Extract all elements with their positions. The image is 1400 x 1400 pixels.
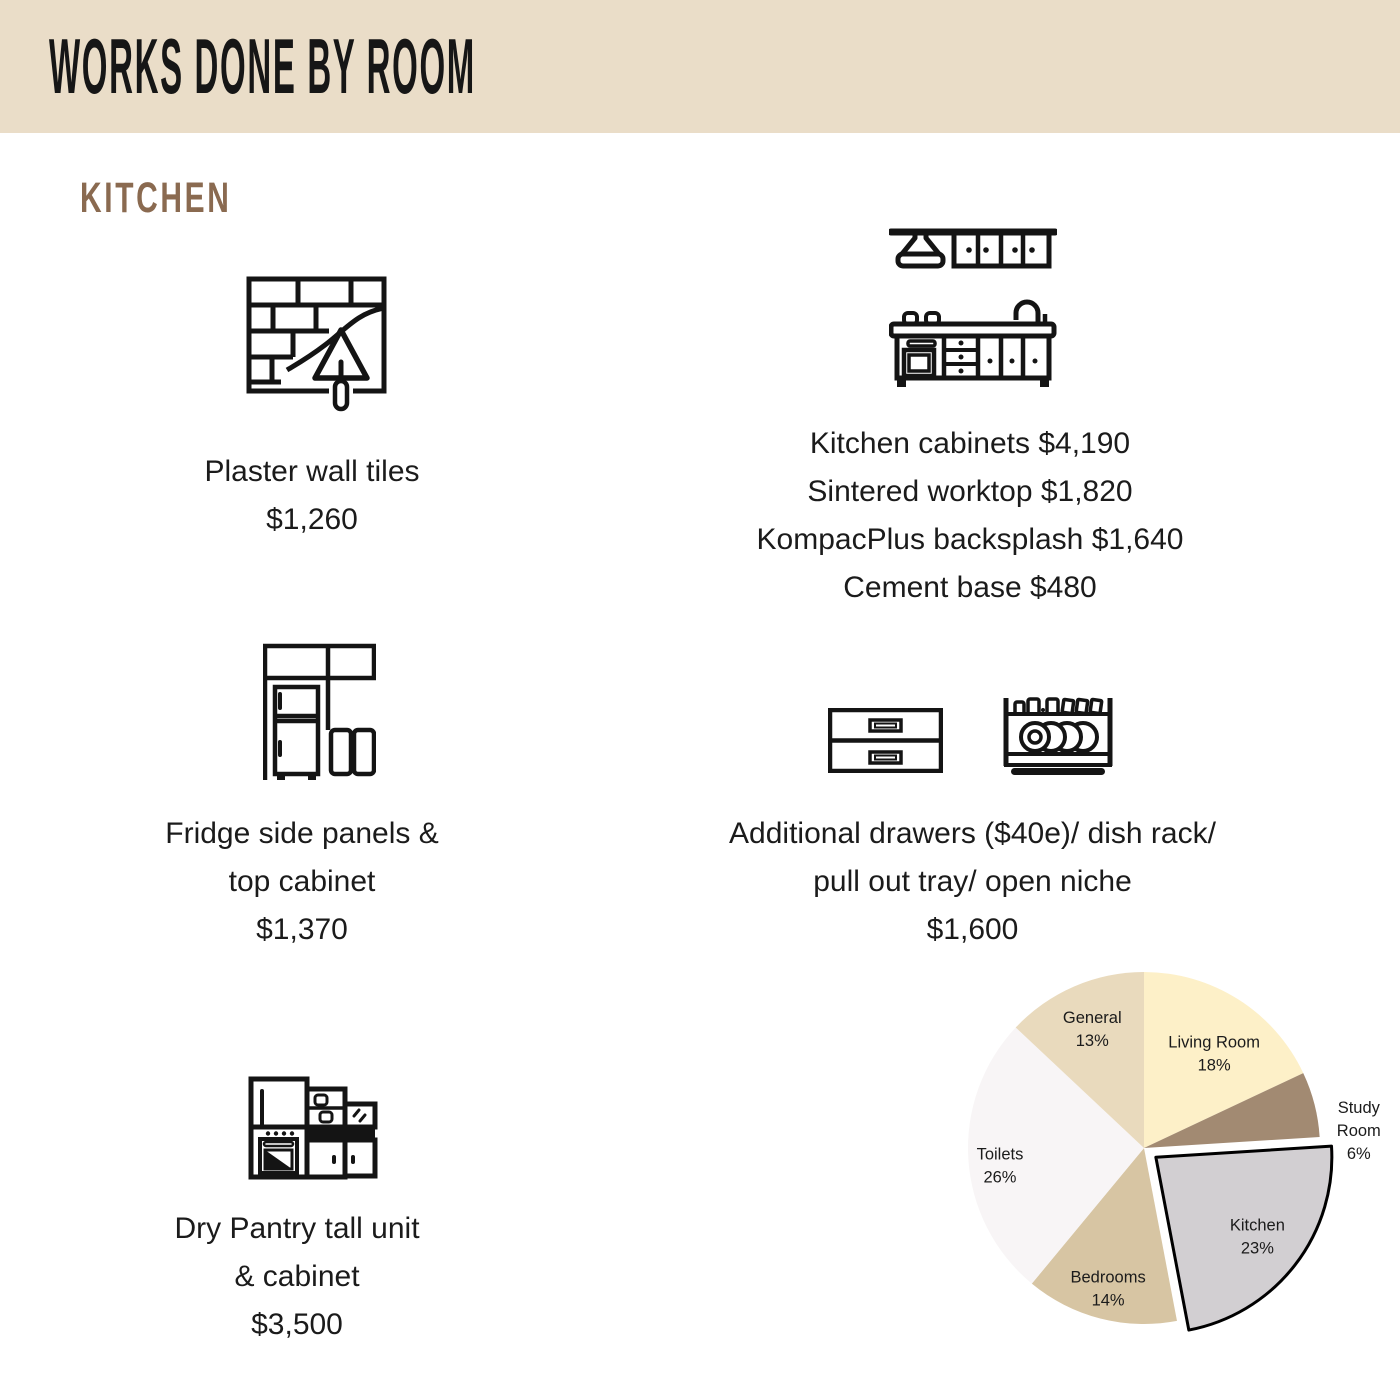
header-bar: WORKS DONE BY ROOM: [0, 0, 1400, 133]
item-price: $1,260: [132, 496, 492, 544]
dish-rack-icon: [1003, 696, 1113, 778]
item-pantry-text: Dry Pantry tall unit & cabinet $3,500: [107, 1205, 487, 1349]
item-plaster-text: Plaster wall tiles $1,260: [132, 448, 492, 544]
item-line: Cement base $480: [660, 564, 1280, 612]
item-line: & cabinet: [107, 1253, 487, 1301]
dry-pantry-icon: [248, 1076, 378, 1180]
item-line: Kitchen cabinets $4,190: [660, 420, 1280, 468]
budget-pie-chart: Living Room18%StudyRoom6%Kitchen23%Bedro…: [920, 930, 1400, 1400]
item-line: Fridge side panels &: [112, 810, 492, 858]
item-cabinets-text: Kitchen cabinets $4,190 Sintered worktop…: [660, 420, 1280, 612]
pie-slice-kitchen: [1156, 1146, 1332, 1330]
item-line: Additional drawers ($40e)/ dish rack/: [640, 810, 1305, 858]
pie-label-study-room: StudyRoom6%: [1337, 1099, 1381, 1163]
item-line: Dry Pantry tall unit: [107, 1205, 487, 1253]
item-line: Sintered worktop $1,820: [660, 468, 1280, 516]
item-price: $3,500: [107, 1301, 487, 1349]
item-line: pull out tray/ open niche: [640, 858, 1305, 906]
item-label: Plaster wall tiles: [132, 448, 492, 496]
item-fridge-text: Fridge side panels & top cabinet $1,370: [112, 810, 492, 954]
item-line: top cabinet: [112, 858, 492, 906]
slide-page: WORKS DONE BY ROOM KITCHEN Plaster wall …: [0, 0, 1400, 1400]
fridge-cabinet-icon: [263, 642, 376, 782]
drawers-icon: [828, 708, 943, 773]
plaster-trowel-icon: [245, 275, 388, 421]
section-title-kitchen: KITCHEN: [80, 177, 231, 220]
page-title: WORKS DONE BY ROOM: [49, 28, 476, 106]
item-price: $1,370: [112, 906, 492, 954]
item-line: KompacPlus backsplash $1,640: [660, 516, 1280, 564]
kitchen-cabinets-icon: [889, 224, 1057, 389]
